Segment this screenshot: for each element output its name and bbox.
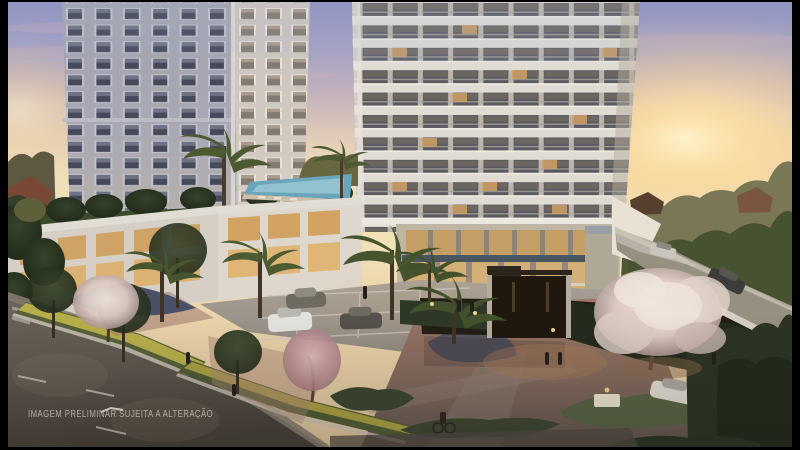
svg-text:IMAGEM PRELIMINAR SUJEITA A AL: IMAGEM PRELIMINAR SUJEITA A ALTERAÇÃO xyxy=(28,408,213,419)
